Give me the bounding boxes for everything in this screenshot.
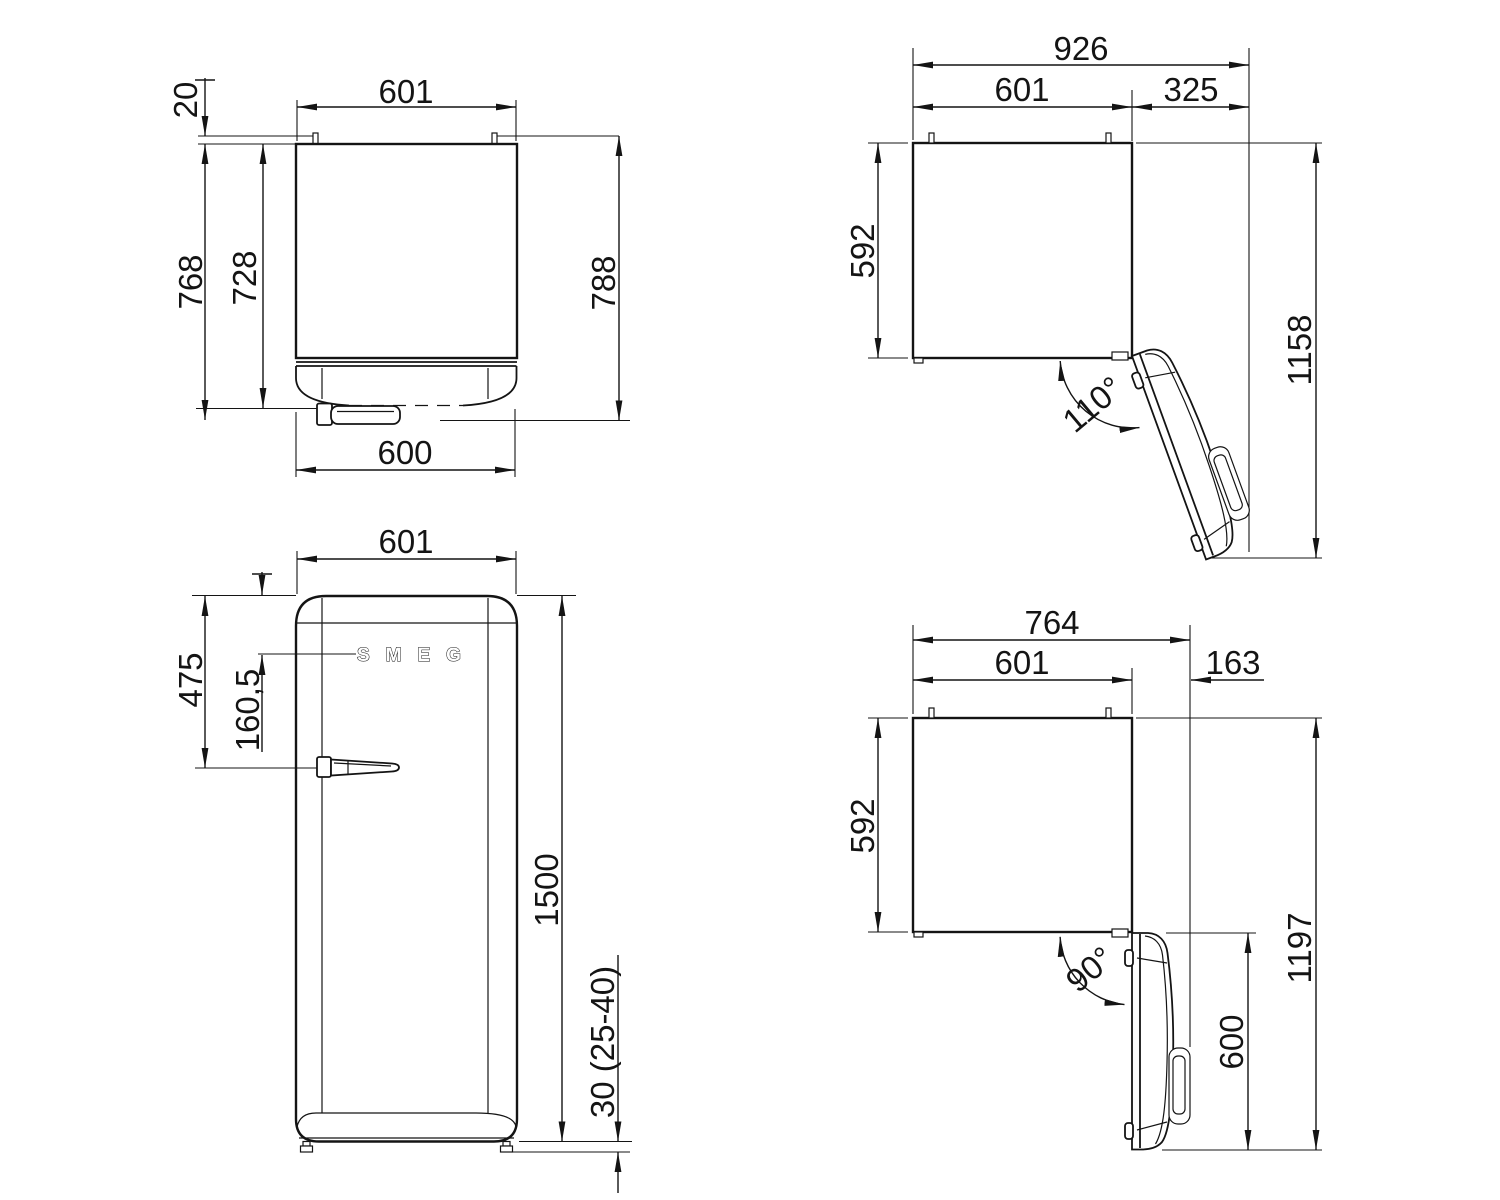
dimension-body-width-601-90: 601 bbox=[913, 644, 1132, 714]
dim-label-592-110: 592 bbox=[844, 223, 881, 278]
dim-label-160-5: 160,5 bbox=[229, 669, 266, 752]
angle-label-110: 110° bbox=[1056, 369, 1130, 440]
view-front: SMEG 601 475 160,5 bbox=[172, 523, 632, 1193]
dim-label-926: 926 bbox=[1053, 30, 1108, 67]
angle-110: 110° bbox=[1056, 361, 1140, 440]
cabinet-top-outline-90 bbox=[913, 718, 1132, 932]
dim-label-1197: 1197 bbox=[1281, 913, 1318, 984]
dimension-door-clearance-163: 163 bbox=[1191, 644, 1264, 681]
cabinet-front-outline bbox=[296, 596, 517, 1142]
angle-90: 90° bbox=[1059, 937, 1125, 1005]
rear-spacers bbox=[313, 133, 497, 144]
rear-spacers-110 bbox=[929, 133, 1111, 143]
handle-top-view bbox=[317, 404, 400, 426]
dimension-rear-gap: 20 bbox=[167, 78, 215, 136]
door-top-outline bbox=[296, 362, 517, 406]
dim-label-592-90: 592 bbox=[844, 798, 881, 853]
foot-mark-110 bbox=[914, 358, 923, 363]
dimension-top-width: 601 bbox=[297, 73, 516, 141]
hinge-plate-110 bbox=[1112, 352, 1128, 360]
dimension-body-depth-592-90: 592 bbox=[844, 718, 908, 932]
dimension-handle-height: 475 bbox=[172, 596, 209, 768]
view-door-open-110: 926 601 325 592 1158 110° bbox=[844, 30, 1322, 562]
dim-label-rear-gap: 20 bbox=[167, 82, 204, 119]
dim-label-475: 475 bbox=[172, 652, 209, 707]
dim-label-front-width: 601 bbox=[378, 523, 433, 560]
dimension-height-1500: 1500 bbox=[528, 596, 565, 1142]
dim-label-325: 325 bbox=[1163, 71, 1218, 108]
dimension-body-depth-592-110: 592 bbox=[844, 143, 908, 358]
dim-label-depth-788: 788 bbox=[585, 255, 622, 310]
angle-label-90: 90° bbox=[1059, 939, 1121, 999]
dim-label-601-110: 601 bbox=[994, 71, 1049, 108]
dim-label-depth-768: 768 bbox=[172, 254, 209, 309]
dimension-depth-768: 768 bbox=[172, 144, 209, 420]
dimension-drawing-page: 601 20 768 728 788 600 bbox=[0, 0, 1500, 1200]
rear-spacers-90 bbox=[929, 708, 1111, 718]
dim-label-feet-gap: 30 (25-40) bbox=[584, 966, 621, 1118]
dim-label-1500: 1500 bbox=[528, 853, 565, 926]
hinge-plate-90 bbox=[1112, 929, 1128, 937]
dim-label-door-width: 600 bbox=[377, 434, 432, 471]
dimension-depth-788: 788 bbox=[585, 136, 622, 421]
dim-label-601-90: 601 bbox=[994, 644, 1049, 681]
dimension-feet-gap: 30 (25-40) bbox=[584, 955, 621, 1193]
dim-label-600-door: 600 bbox=[1213, 1014, 1250, 1069]
view-top: 601 20 768 728 788 600 bbox=[167, 73, 630, 477]
dimension-depth-728: 728 bbox=[226, 144, 263, 408]
open-door-90 bbox=[1125, 933, 1190, 1150]
dim-label-depth-728: 728 bbox=[226, 250, 263, 305]
dimension-logo-height: 160,5 bbox=[229, 572, 272, 752]
open-door-110 bbox=[1125, 336, 1260, 562]
dimension-front-width: 601 bbox=[297, 523, 516, 594]
dimension-body-width-601: 601 bbox=[913, 71, 1132, 141]
dim-label-764: 764 bbox=[1024, 604, 1079, 641]
foot-mark-90 bbox=[914, 932, 923, 937]
view-door-open-90: 764 601 163 592 1197 600 bbox=[844, 604, 1322, 1150]
feet bbox=[301, 1142, 513, 1153]
dim-label-1158: 1158 bbox=[1281, 315, 1318, 386]
cabinet-top-outline bbox=[296, 144, 517, 358]
smeg-logo: SMEG bbox=[357, 645, 477, 666]
dim-label-top-width: 601 bbox=[378, 73, 433, 110]
cabinet-top-outline-110 bbox=[913, 143, 1132, 358]
dim-label-163: 163 bbox=[1205, 644, 1260, 681]
refrigerator-technical-drawing: 601 20 768 728 788 600 bbox=[0, 0, 1500, 1200]
dimension-door-clearance-325: 325 bbox=[1132, 71, 1249, 108]
